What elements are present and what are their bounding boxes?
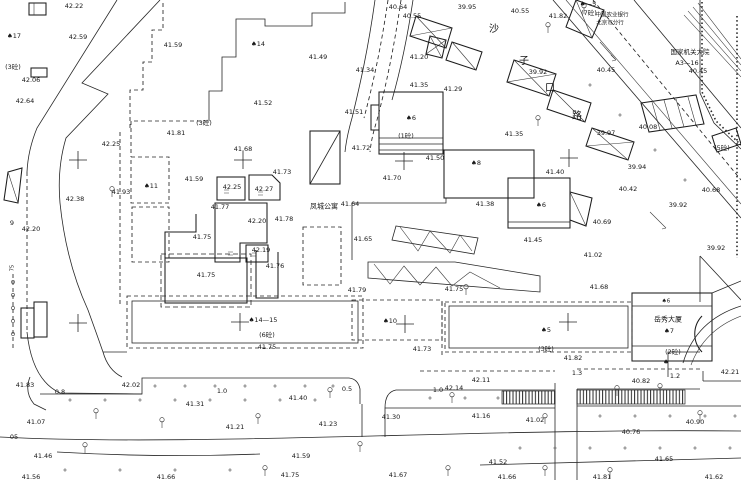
spot-elevation: 42.64 [16,98,35,105]
spot-elevation: 41.75 [445,286,464,293]
survey-grid-crosses [69,149,578,333]
spot-elevation: 41.40 [289,395,308,402]
story-annotation: (3砼) [196,120,212,127]
tree-symbols [83,4,702,478]
structures-northwest [4,3,47,348]
spot-elevation: 41.34 [356,67,375,74]
spot-elevation: 41.49 [309,54,328,61]
bank-name: 中国农业银行 [595,13,628,19]
spot-elevation: 41.81 [593,474,612,480]
curved-lane [345,0,446,152]
spot-elevation: 41.75 [258,344,277,351]
street-name-char: 子 [519,57,529,67]
building-number: ♠7 [664,328,674,335]
spot-elevation: 41.29 [444,86,463,93]
spot-elevation: 41.83 [16,382,35,389]
spot-elevation: 41.93 [112,189,131,196]
building-number: ♠14—15 [249,317,278,324]
spot-elevation: 75 [11,265,16,271]
spot-elevation: 42.38 [66,196,85,203]
spot-elevation: 42.59 [69,34,88,41]
spot-elevation: 42.20 [248,218,267,225]
spot-elevation: 41.38 [476,201,495,208]
building-number: ♠6 [536,202,546,209]
spot-elevation: 41.66 [498,474,517,480]
spot-elevation: 41.82 [549,13,568,20]
spot-elevation: 42.02 [122,382,141,389]
story-annotation: (3砼) [5,64,21,71]
spot-elevation: 41.45 [524,237,543,244]
spot-elevation: 41.65 [655,456,674,463]
spot-elevation: 42.19 [252,247,271,254]
story-annotation: (6砼) [259,332,275,339]
spot-elevation: 40.45 [597,67,616,74]
spot-elevation: 41.21 [226,424,245,431]
spot-elevation: 41.35 [505,131,524,138]
spot-elevation: 41.35 [410,82,429,89]
spot-elevation: 41.77 [211,204,230,211]
spot-elevation: 41.67 [389,472,408,479]
distance-annotation: 0.5 [342,386,352,393]
buildings-northeast-row [410,0,704,160]
spot-elevation: 42.22 [65,3,84,10]
spot-elevation: 41.68 [234,146,253,153]
spot-elevation: 41.64 [341,201,360,208]
spot-elevation: 41.56 [22,474,41,480]
spot-elevation: 41.73 [273,169,292,176]
street-name-char: 口 [545,84,555,94]
streets-south [0,352,741,480]
spot-elevation: 42.25 [223,184,242,191]
spot-elevation: 05 [10,434,18,441]
spot-elevation: 41.68 [590,284,609,291]
building-number: ♠17 [7,33,21,40]
spot-elevation: 41.62 [705,474,724,480]
block-yuexiu [632,281,741,361]
building-number: ♠14 [251,41,265,48]
spot-elevation: 41.59 [292,453,311,460]
distance-annotation: 1.2 [670,373,680,380]
building-11-footprint [131,157,169,203]
spot-elevation: 41.51 [345,109,364,116]
spot-elevation: 42.14 [445,385,464,392]
spot-elevation: 40.90 [686,419,705,426]
spot-elevation: 41.70 [383,175,402,182]
building-number: ♠6 [662,299,670,305]
spot-elevation: 40.45 [689,68,708,75]
building-number: ♠5 [541,327,551,334]
compound-code: A3—16 [675,60,698,67]
spot-elevation: 41.59 [164,42,183,49]
spot-elevation: 40.68 [702,187,721,194]
building-name: 凤城公寓 [310,204,338,211]
spot-elevation: 42.27 [255,186,274,193]
spot-elevation: 41.82 [564,355,583,362]
spot-elevation: 39.92 [529,69,548,76]
survey-map-viewport[interactable]: 42.22♠1742.5941.59(3砼)42.0642.64(3砼)♠144… [0,0,741,480]
spot-elevation: 41.75 [281,472,300,479]
story-annotation: (2砼) [665,349,681,356]
spot-elevation: 41.52 [489,459,508,466]
buildings-south-row [352,300,700,371]
building-number: ♠ [663,359,669,366]
distance-annotation: 1.0 [433,387,443,394]
spot-elevation: 40.08 [639,124,658,131]
spot-elevation: 40.42 [619,186,638,193]
spot-elevation: 41.76 [266,263,285,270]
spot-elevation: 41.75 [197,272,216,279]
distance-annotation: 1.0 [217,388,227,395]
spot-elevation: 42.25 [102,141,121,148]
building-8-footprint [444,150,534,198]
story-annotation: (3砼) [538,346,554,353]
spot-elevation: 40.64 [389,4,408,11]
spot-elevation: 41.75 [193,234,212,241]
road-shazikou [553,0,741,365]
spot-elevation: 39.92 [707,245,726,252]
spot-elevation: 41.78 [275,216,294,223]
distance-annotation: 0.8 [55,389,65,396]
spot-elevation: 41.07 [27,419,46,426]
spot-elevation: 41.23 [319,421,338,428]
spot-elevation: 41.02 [584,252,603,259]
building-name: 岳秀大厦 [654,317,682,324]
story-annotation: (5砼) [714,145,730,152]
bank-name: 北京市分行 [596,21,624,27]
spot-elevation: 42.06 [22,77,41,84]
building-number: ♠—5 [580,1,596,8]
story-annotation: (1砼) [398,133,414,140]
spot-elevation: 41.66 [157,474,176,480]
spot-elevation: 42.11 [472,377,491,384]
compound-name: 国家机关大院 [671,49,710,56]
spot-elevation: 41.30 [382,414,401,421]
spot-elevation: 41.81 [167,130,186,137]
spot-elevation: 41.02 [526,417,545,424]
building-number: ♠8 [471,160,481,167]
spot-elevation: 41.65 [354,236,373,243]
spot-elevation: 41.20 [410,54,429,61]
building-6a-footprint [379,92,443,154]
spot-elevation: 39.94 [628,164,647,171]
spot-elevation: 41.31 [186,401,205,408]
spot-elevation: 41.16 [472,413,491,420]
distance-annotation: 1.3 [572,370,582,377]
spot-elevation: 41.73 [413,346,432,353]
spot-elevation: 39.95 [458,4,477,11]
spot-elevation: 40.69 [593,219,612,226]
spot-elevation: 41.59 [185,176,204,183]
street-name-char: 路 [572,112,582,122]
spot-elevation: 40.76 [622,429,641,436]
building-number: ♠6 [406,115,416,122]
spot-elevation: 41.46 [34,453,53,460]
spot-elevation: 41.50 [426,155,445,162]
road-northwest [27,0,163,410]
spot-elevation: 40.55 [403,13,422,20]
spot-elevation: 42.21 [721,369,740,376]
street-name-char: 沙 [489,25,499,35]
spot-elevation: 41.40 [546,169,565,176]
spot-elevation: 40.55 [511,8,530,15]
building-number: ♠11 [144,183,158,190]
spot-elevation: 41.79 [348,287,367,294]
spot-elevation: 42.20 [22,226,41,233]
spot-elevation: 9 [10,220,14,227]
spot-elevation: 41.52 [254,100,273,107]
buildings-center [352,92,592,292]
spot-elevation: 39.92 [669,202,688,209]
spot-elevation: 39.97 [597,130,616,137]
spot-elevation: 41.72 [352,145,371,152]
spot-elevation: 40.82 [632,378,651,385]
building-number: ♠10 [383,318,397,325]
